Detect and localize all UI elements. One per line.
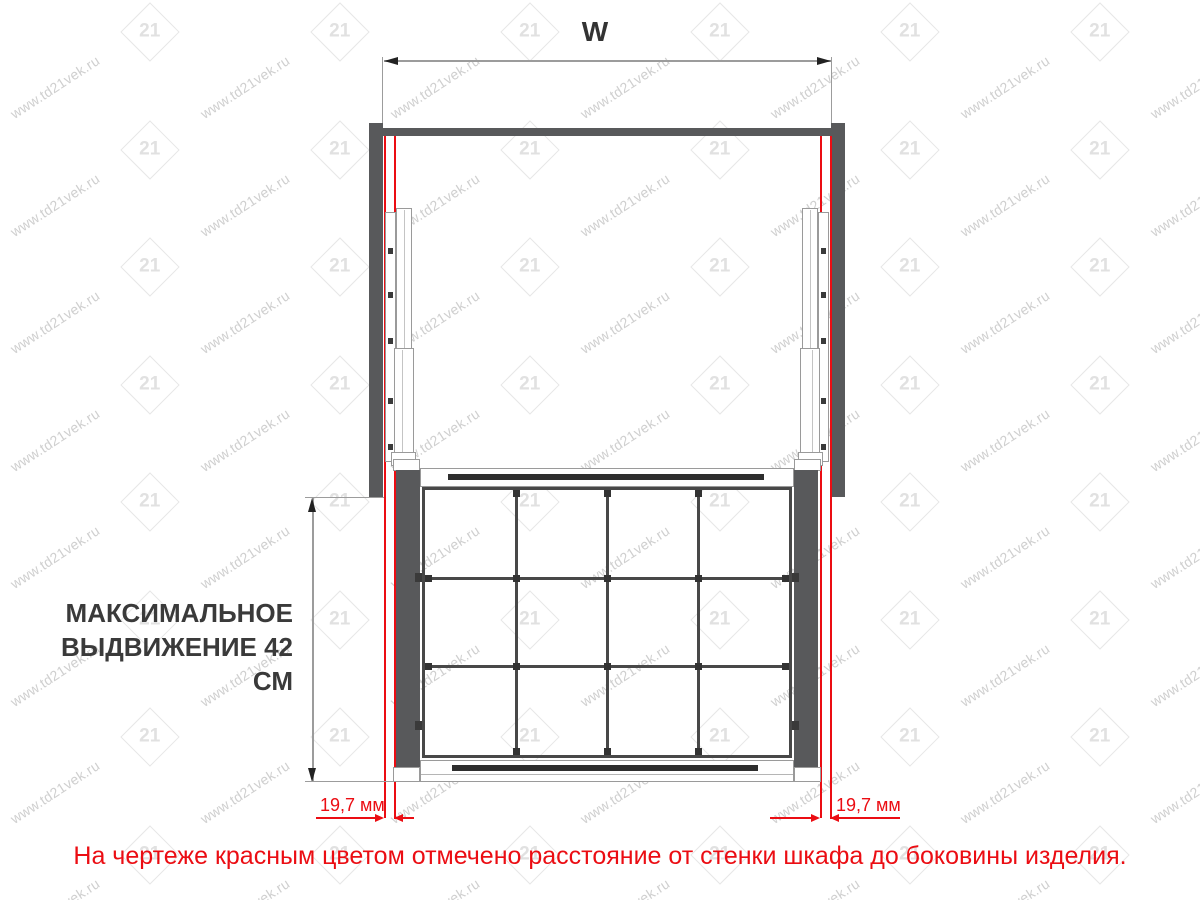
clearance-right-label: 19,7 мм — [836, 795, 901, 816]
max-extension-note-line2: ВЫДВИЖЕНИЕ 42 СМ — [40, 630, 293, 698]
technical-drawing-page: 2121212121212121www.td21vek.ruwww.td21ve… — [0, 0, 1200, 900]
labels-layer: W МАКСИМАЛЬНОЕ ВЫДВИЖЕНИЕ 42 СМ 19,7 мм … — [0, 0, 1200, 900]
clearance-left-label: 19,7 мм — [320, 795, 385, 816]
footnote-text: На чертеже красным цветом отмечено расст… — [0, 842, 1200, 871]
width-dimension-label: W — [560, 16, 630, 48]
max-extension-note-line1: МАКСИМАЛЬНОЕ — [40, 596, 293, 630]
max-extension-note: МАКСИМАЛЬНОЕ ВЫДВИЖЕНИЕ 42 СМ — [40, 596, 293, 698]
